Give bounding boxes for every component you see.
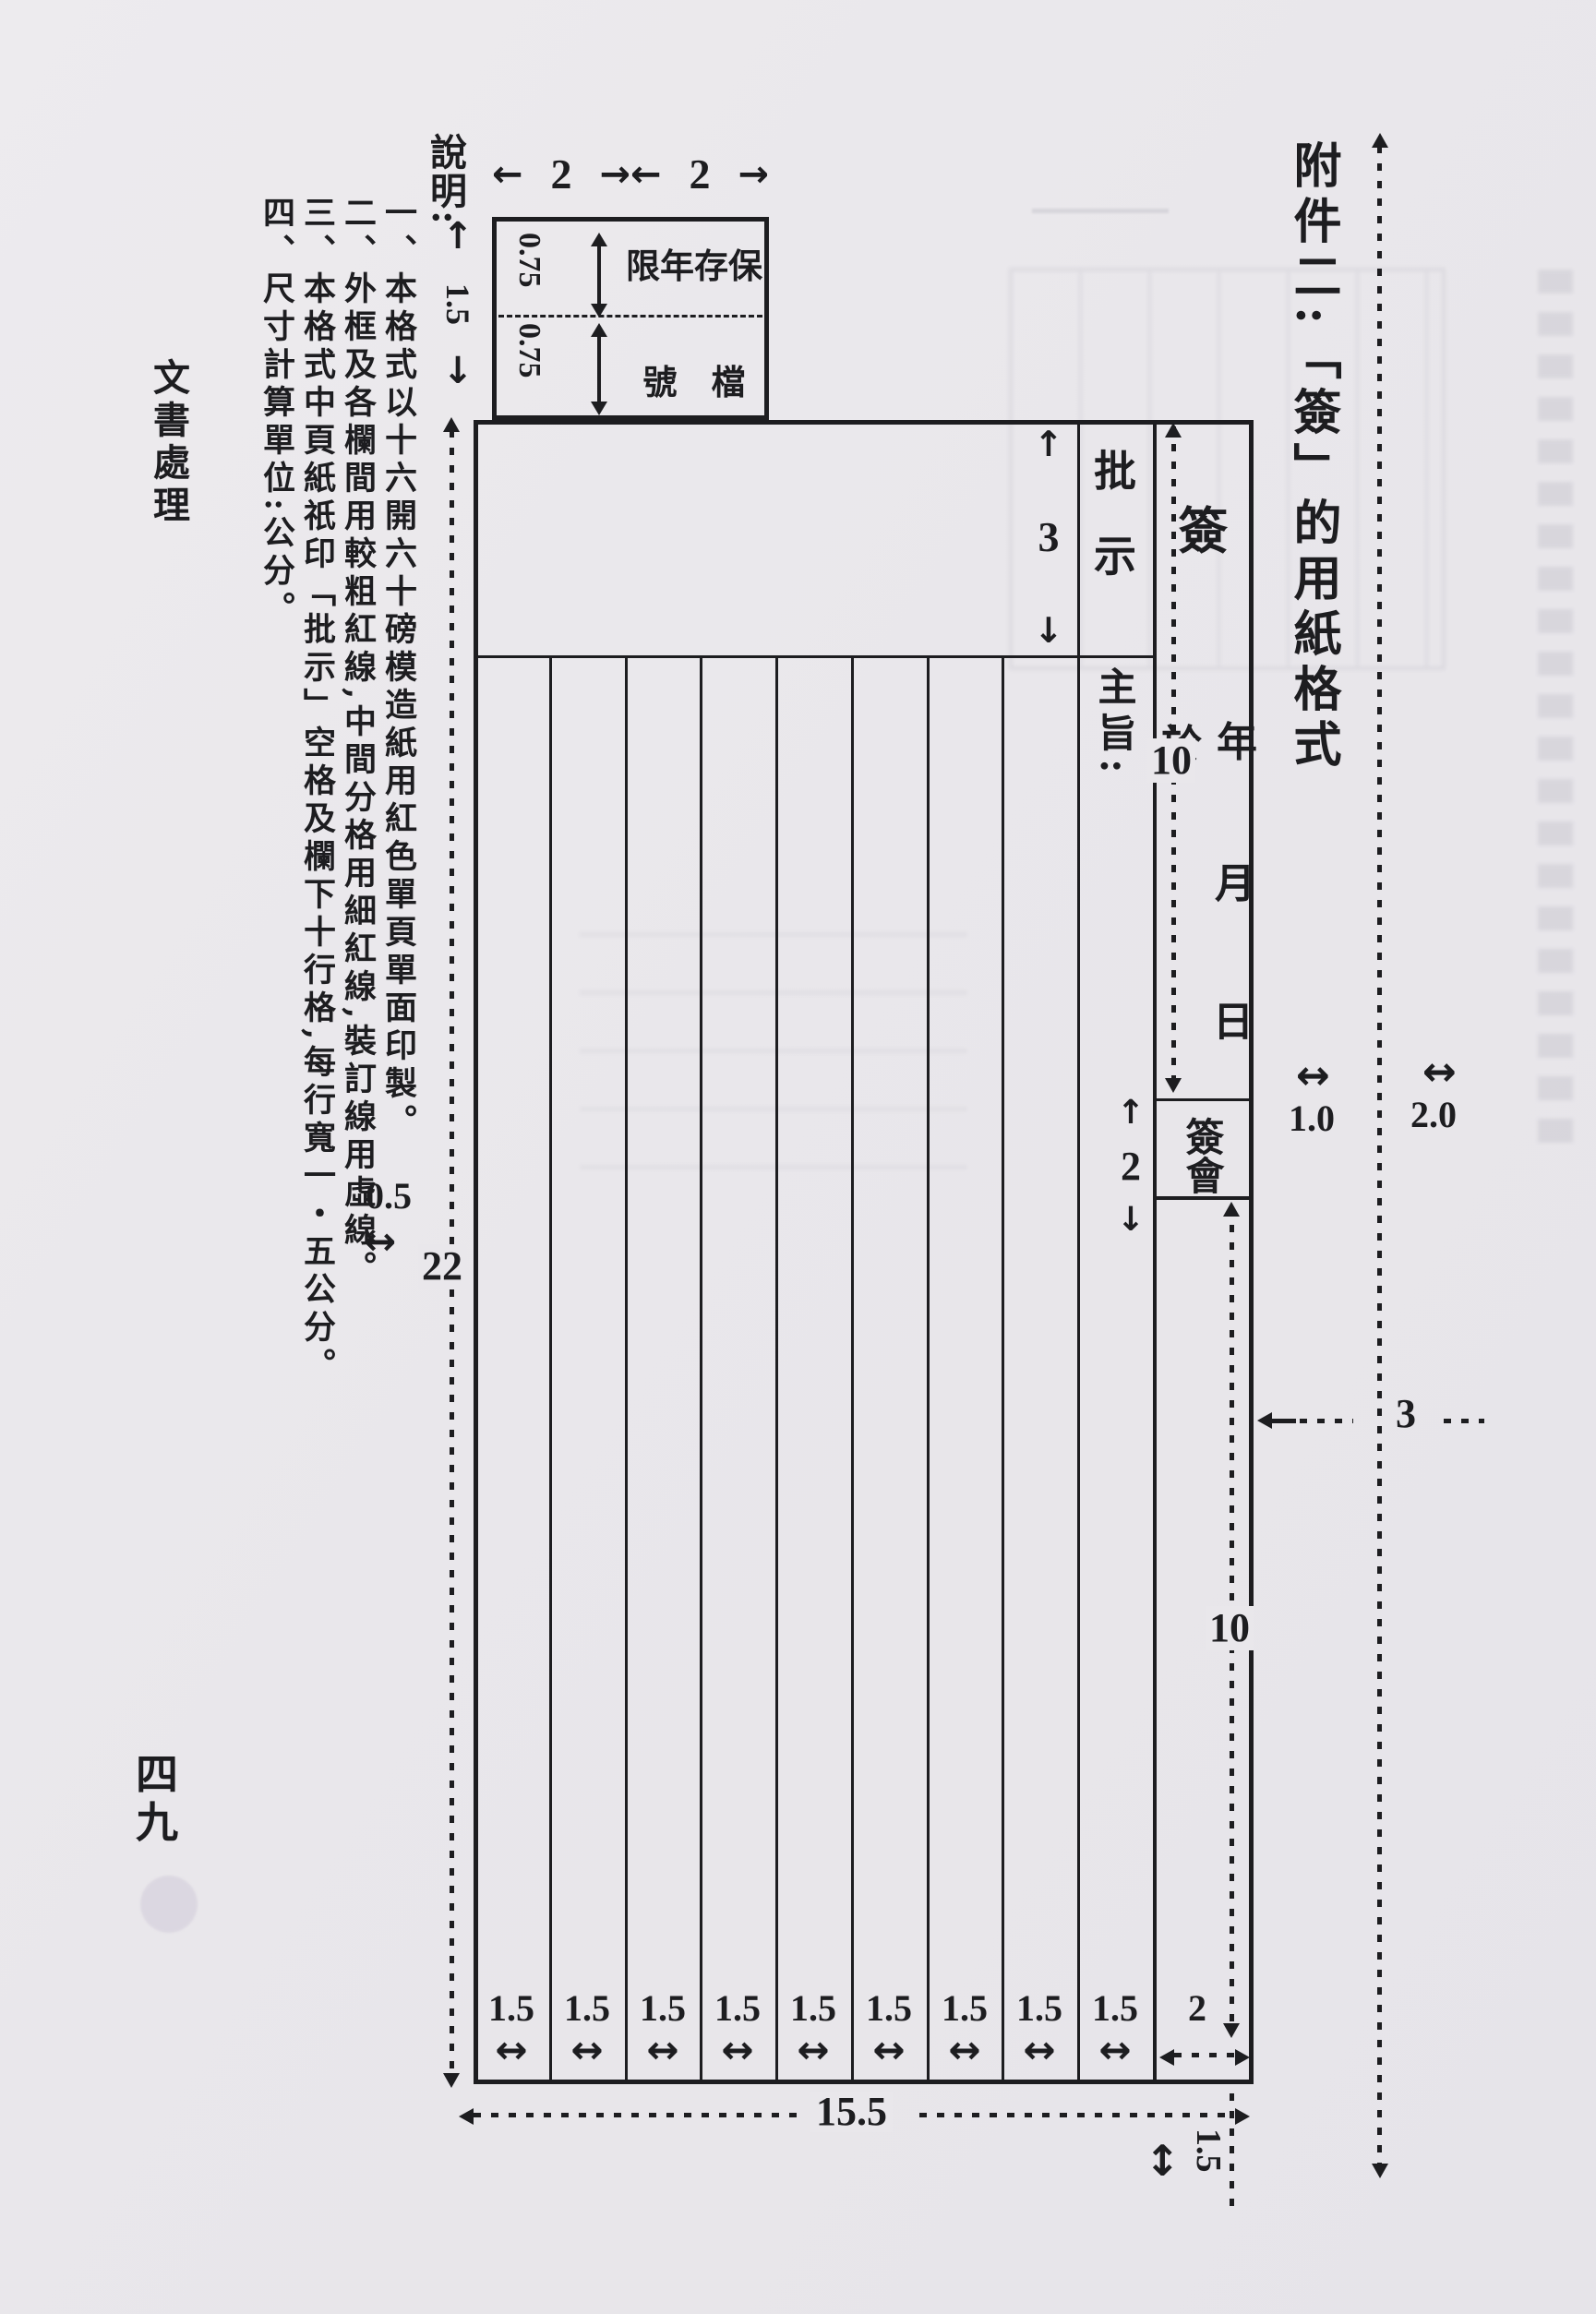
- subject-label: 主旨:: [1095, 666, 1134, 781]
- col-width-label: 1.5: [1080, 1990, 1150, 2027]
- arrow-down-icon: ↓: [442, 353, 474, 390]
- note-item: 一、本格式以十六開六十磅模造紙用紅色單頁單面印製。: [382, 196, 414, 1562]
- dim-label-total-height: 22: [418, 1244, 466, 1289]
- col-width-label-last: 2: [1165, 1990, 1230, 2027]
- arrow-both-icon: ↔: [930, 2031, 1000, 2069]
- header-box-divider: [498, 315, 762, 318]
- approval-divider: [474, 655, 1157, 658]
- arrow-down-icon: [443, 2073, 460, 2088]
- dim-label: 2: [1121, 1146, 1141, 1187]
- sign-label: 簽: [1153, 506, 1254, 556]
- arrow-right-icon: [1235, 2108, 1250, 2125]
- col-width-label: 1.5: [778, 1990, 848, 2027]
- scanned-page: 文書處理 四九 說明: 一、本格式以十六開六十磅模造紙用紅色單頁單面印製。 二、…: [0, 0, 1596, 2314]
- arrow-up-icon: [1223, 1202, 1240, 1217]
- notes-list: 一、本格式以十六開六十磅模造紙用紅色單頁單面印製。 二、外框及各欄間用較粗紅線,…: [214, 196, 423, 1562]
- dim-label-total-width: 15.5: [810, 2092, 893, 2132]
- dim-arrow-vertical: [597, 246, 601, 305]
- dim-label: 2: [690, 153, 711, 196]
- arrow-right-icon: →: [599, 156, 630, 193]
- bleedthrough-strip: [1538, 270, 1573, 1146]
- countersign-label: 簽 會: [1157, 1119, 1254, 1196]
- bleedthrough-line: [1032, 209, 1169, 213]
- col-width-label: 1.5: [476, 1990, 546, 2027]
- col-width-label: 1.5: [702, 1990, 773, 2027]
- column-line: [1002, 655, 1004, 2084]
- dim-label-right-total: 3: [1396, 1394, 1416, 1434]
- arrow-up-icon: ↑: [442, 218, 474, 255]
- dim-label-left-gap: 0.5: [366, 1178, 412, 1215]
- notes-heading: 說明:: [426, 133, 463, 226]
- dim-line-total-width: [919, 2113, 1235, 2117]
- dim-label-bottom-gap: 1.5: [1191, 2128, 1226, 2173]
- side-header: 文書處理: [150, 358, 186, 528]
- attachment-title: 附件二:「簽」的用紙格式: [1289, 140, 1337, 774]
- dim-line: [1174, 2053, 1235, 2057]
- arrow-left-icon: ←: [630, 156, 662, 193]
- arrow-both-icon: ↔: [1080, 2031, 1150, 2069]
- column-line: [700, 655, 702, 2084]
- dim-label: 1.5: [441, 283, 474, 325]
- arrow-up-icon: [1165, 423, 1182, 438]
- dim-arrow-vertical: [597, 336, 601, 402]
- col-width-label: 1.5: [854, 1990, 924, 2027]
- dim-label-right-gap1: 1.0: [1289, 1100, 1335, 1137]
- column-line: [851, 655, 854, 2084]
- arrow-left-icon: ←: [492, 156, 523, 193]
- file-number-label: 號 檔: [624, 366, 764, 400]
- dim-approval-height: ↑ 3 ↓: [1026, 426, 1071, 648]
- col-width-label: 1.5: [628, 1990, 698, 2027]
- column-line: [1077, 420, 1080, 2084]
- dim-header-height: ↑ 1.5 ↓: [434, 218, 482, 390]
- arrow-right-icon: [1235, 2049, 1250, 2066]
- dim-row-height-2: 0.75: [513, 323, 545, 378]
- note-item: 四、尺寸計算單位:公分。: [260, 196, 293, 1562]
- dim-line: [1300, 1419, 1353, 1423]
- dim-line-total-width: [474, 2113, 807, 2117]
- day-label: 日: [1213, 1002, 1254, 1043]
- dim-label: 3: [1038, 516, 1060, 558]
- dim-countersign-height: ↑ 2 ↓: [1110, 1097, 1151, 1237]
- arrow-down-icon: [1372, 2164, 1388, 2178]
- arrow-left-icon: [1159, 2049, 1174, 2066]
- col-width-label: 1.5: [552, 1990, 622, 2027]
- dim-line: [1270, 1419, 1296, 1423]
- note-item: 三、本格式中頁紙祇印「批示」空格及欄下十行格,每行寬一・五公分。: [301, 196, 333, 1562]
- arrow-both-vertical-icon: ↕: [1145, 2140, 1181, 2182]
- dim-header-col2: ← 2 →: [630, 153, 769, 196]
- arrow-both-icon: ↔: [1296, 1056, 1330, 1097]
- dim-label: 2: [551, 153, 572, 196]
- note-item: 二、外框及各欄間用較粗紅線,中間分格用細紅線,裝訂線用虛線。: [342, 196, 374, 1562]
- arrow-up-icon: ↑: [1034, 426, 1063, 462]
- arrow-both-icon: ↔: [364, 1222, 396, 1261]
- arrow-both-icon: ↔: [702, 2031, 773, 2069]
- dim-header-col1: ← 2 →: [492, 153, 630, 196]
- column-line: [1153, 420, 1157, 2084]
- page-number: 四九: [133, 1752, 175, 1848]
- dim-label-upper-height: 10: [1147, 738, 1195, 783]
- column-line: [775, 655, 778, 2084]
- arrow-up-icon: [1372, 133, 1388, 148]
- arrow-both-icon: ↔: [552, 2031, 622, 2069]
- arrow-both-icon: ↔: [1004, 2031, 1074, 2069]
- arrow-both-icon: ↔: [1422, 1052, 1457, 1093]
- column-line: [625, 655, 628, 2084]
- dim-line: [1444, 1419, 1484, 1423]
- approval-label: 批示: [1091, 449, 1134, 618]
- binding-line: [1377, 146, 1382, 2167]
- dim-row-height-1: 0.75: [513, 233, 545, 288]
- dim-label-right-gap2: 2.0: [1410, 1097, 1457, 1133]
- column-line: [549, 655, 552, 2084]
- countersign-cell-top: [1157, 1098, 1254, 1101]
- dim-line-bottom-gap: [1230, 2093, 1234, 2213]
- arrow-both-icon: ↔: [628, 2031, 698, 2069]
- arrow-right-icon: →: [738, 156, 769, 193]
- month-label: 月: [1215, 864, 1255, 905]
- arrow-down-icon: ↓: [1117, 1204, 1145, 1237]
- column-line: [927, 655, 930, 2084]
- arrow-up-icon: ↑: [1117, 1097, 1145, 1130]
- col-width-label: 1.5: [1004, 1990, 1074, 2027]
- ink-spot: [140, 1876, 198, 1933]
- retention-label: 限年存保: [624, 249, 764, 283]
- arrow-up-icon: [443, 417, 460, 432]
- col-width-label: 1.5: [930, 1990, 1000, 2027]
- arrow-both-icon: ↔: [778, 2031, 848, 2069]
- arrow-left-icon: [459, 2108, 474, 2125]
- dim-label-lower-height: 10: [1206, 1606, 1254, 1650]
- arrow-both-icon: ↔: [476, 2031, 546, 2069]
- arrow-down-icon: ↓: [1034, 613, 1063, 648]
- year-label: 年: [1217, 723, 1257, 763]
- arrow-both-icon: ↔: [854, 2031, 924, 2069]
- arrow-down-icon: [1165, 1078, 1182, 1093]
